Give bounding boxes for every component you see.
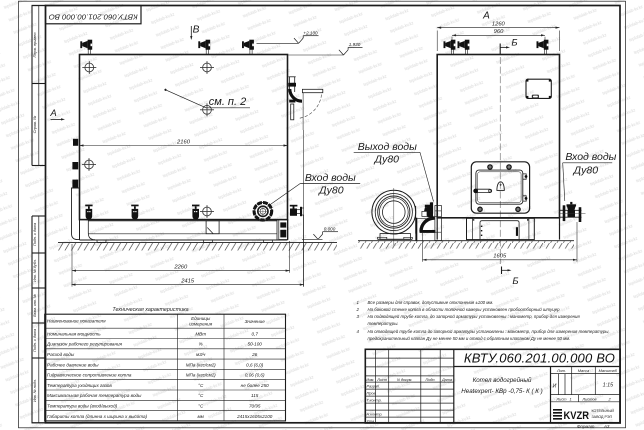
svg-text:°С: °С bbox=[198, 383, 204, 388]
svg-text:Диапазон рабочего регулировани: Диапазон рабочего регулирования bbox=[46, 342, 123, 347]
svg-text:Максимальная рабочая температу: Максимальная рабочая температура воды bbox=[47, 393, 142, 398]
svg-text:Пров.: Пров. bbox=[367, 392, 377, 396]
svg-text:2160: 2160 bbox=[176, 139, 191, 145]
svg-text:0.000: 0.000 bbox=[324, 226, 336, 231]
svg-text:Температура уходящих газов: Температура уходящих газов bbox=[47, 383, 112, 388]
svg-text:МПа (кгс/см2): МПа (кгс/см2) bbox=[186, 373, 216, 378]
svg-text:КВТУ.060.201.00.000 ВО: КВТУ.060.201.00.000 ВО bbox=[464, 351, 615, 366]
svg-text:0,06 (0,6): 0,06 (0,6) bbox=[245, 373, 265, 378]
svg-text:КОТЕЛЬНЫЙ: КОТЕЛЬНЫЙ bbox=[592, 409, 615, 413]
svg-text:Ду80: Ду80 bbox=[318, 184, 344, 196]
svg-text:На подводящей трубе котла, д: На подводящей трубе котла, до запорной а… bbox=[368, 314, 581, 319]
svg-text:мм: мм bbox=[198, 414, 205, 419]
svg-text:50-100: 50-100 bbox=[248, 342, 263, 347]
svg-text:Лит.: Лит. bbox=[556, 368, 566, 373]
svg-text:Листов: Листов bbox=[581, 396, 596, 401]
svg-text:0,7: 0,7 bbox=[252, 331, 259, 336]
svg-text:Heatexpert- КВр -0,75- К ( К ): Heatexpert- КВр -0,75- К ( К ) bbox=[461, 388, 542, 395]
svg-text:1: 1 bbox=[570, 396, 572, 401]
svg-text:измерения: измерения bbox=[189, 322, 213, 327]
svg-text:На боковой стенке котла в обла: На боковой стенке котла в области топочн… bbox=[368, 307, 561, 312]
svg-text:2: 2 bbox=[356, 307, 360, 312]
svg-text:Вход воды: Вход воды bbox=[565, 151, 616, 163]
svg-text:Выход воды: Выход воды bbox=[358, 141, 417, 153]
svg-text:не более 250: не более 250 bbox=[241, 383, 269, 388]
svg-text:Подп. и дата: Подп. и дата bbox=[33, 329, 37, 352]
svg-text:Б: Б bbox=[512, 276, 518, 287]
svg-text:Б: Б bbox=[511, 37, 517, 48]
svg-text:А3: А3 bbox=[603, 424, 610, 429]
svg-text:Температура воды (вход/выход): Температура воды (вход/выход) bbox=[47, 404, 118, 409]
svg-text:1605: 1605 bbox=[493, 254, 507, 260]
svg-text:Расход воды: Расход воды bbox=[47, 352, 75, 357]
svg-text:70/95: 70/95 bbox=[249, 404, 261, 409]
svg-text:N докум.: N докум. bbox=[397, 378, 412, 382]
svg-text:Масса: Масса bbox=[578, 368, 590, 373]
svg-text:Масштаб: Масштаб bbox=[599, 368, 618, 373]
svg-text:КВТУ.060.201.00.000 ВО: КВТУ.060.201.00.000 ВО bbox=[48, 12, 138, 19]
svg-text:KVZR: KVZR bbox=[564, 410, 590, 422]
svg-text:Дата: Дата bbox=[441, 378, 452, 382]
svg-text:см. п. 2: см. п. 2 bbox=[209, 96, 246, 108]
svg-text:Т.контр.: Т.контр. bbox=[367, 399, 382, 403]
svg-text:2260: 2260 bbox=[173, 264, 188, 270]
svg-text:26: 26 bbox=[251, 352, 258, 357]
svg-text:2415х1605х2100: 2415х1605х2100 bbox=[236, 414, 273, 419]
svg-text:Габариты котла (длинна х ширин: Габариты котла (длинна х ширина х высота… bbox=[47, 414, 148, 419]
svg-text:Инв. № дубл.: Инв. № дубл. bbox=[33, 259, 37, 282]
svg-text:Все размеры для справок, допус: Все размеры для справок, допустимые откл… bbox=[368, 300, 494, 305]
svg-text:1260: 1260 bbox=[492, 21, 506, 27]
svg-text:м3/ч: м3/ч bbox=[196, 352, 206, 357]
svg-text:И: И bbox=[552, 383, 556, 389]
svg-text:Котел водогрейный: Котел водогрейный bbox=[473, 377, 532, 384]
svg-text:Подп.: Подп. bbox=[425, 378, 435, 382]
svg-text:температуры.: температуры. bbox=[368, 321, 399, 326]
svg-text:Формат: Формат bbox=[577, 424, 595, 429]
svg-text:Техническая характеристика: Техническая характеристика bbox=[112, 307, 188, 313]
svg-text:Справ. №: Справ. № bbox=[32, 115, 37, 133]
svg-text:Инв. № подл.: Инв. № подл. bbox=[33, 379, 37, 402]
svg-text:Значение: Значение bbox=[245, 319, 266, 324]
svg-text:Взам. инв. №: Взам. инв. № bbox=[33, 294, 37, 317]
svg-text:Наименование показателя: Наименование показателя bbox=[47, 319, 106, 324]
svg-text:Лист: Лист bbox=[555, 396, 567, 401]
svg-text:Лист: Лист bbox=[376, 378, 387, 382]
svg-text:Единицы: Единицы bbox=[191, 316, 211, 321]
svg-text:предохранительный клапан Ду не: предохранительный клапан Ду не менее 50 … bbox=[368, 336, 571, 341]
svg-text:1.930: 1.930 bbox=[349, 42, 361, 47]
svg-text:1:15: 1:15 bbox=[603, 383, 614, 389]
svg-text:%: % bbox=[199, 342, 203, 347]
svg-text:+2.100: +2.100 bbox=[303, 30, 318, 35]
svg-text:Н.контр.: Н.контр. bbox=[367, 413, 383, 417]
svg-text:°С: °С bbox=[198, 404, 204, 409]
svg-text:Разраб.: Разраб. bbox=[367, 385, 381, 389]
svg-text:Подп. и дата: Подп. и дата bbox=[33, 223, 37, 246]
svg-text:Утв.: Утв. bbox=[367, 419, 376, 423]
svg-text:Ду80: Ду80 bbox=[573, 164, 599, 176]
svg-text:А: А bbox=[482, 10, 490, 21]
svg-text:МВт: МВт bbox=[195, 331, 206, 336]
svg-text:Вход воды: Вход воды bbox=[305, 172, 356, 184]
svg-text:МПа (кгс/см2): МПа (кгс/см2) bbox=[186, 362, 216, 367]
svg-text:Рабочее давление воды: Рабочее давление воды bbox=[47, 362, 99, 367]
svg-text:В: В bbox=[193, 25, 200, 36]
svg-text:Ду80: Ду80 bbox=[374, 153, 400, 165]
svg-text:Гидравлическое сопротивление к: Гидравлическое сопротивление котла bbox=[47, 373, 132, 378]
svg-text:115: 115 bbox=[251, 393, 259, 398]
svg-text:960: 960 bbox=[494, 29, 504, 35]
svg-text:А: А bbox=[49, 108, 56, 119]
svg-text:На отводящей трубе котла до за: На отводящей трубе котла до запорной арм… bbox=[368, 329, 610, 334]
svg-text:Перв. примен.: Перв. примен. bbox=[32, 32, 37, 58]
svg-text:ЗАВОД РЭП: ЗАВОД РЭП bbox=[592, 415, 613, 419]
svg-text:2415: 2415 bbox=[180, 278, 195, 284]
svg-text:0,6 (6,0): 0,6 (6,0) bbox=[246, 362, 264, 367]
svg-text:°С: °С bbox=[198, 393, 204, 398]
svg-text:Номинальная мощность: Номинальная мощность bbox=[47, 331, 101, 336]
svg-text:Изм.: Изм. bbox=[366, 378, 374, 382]
